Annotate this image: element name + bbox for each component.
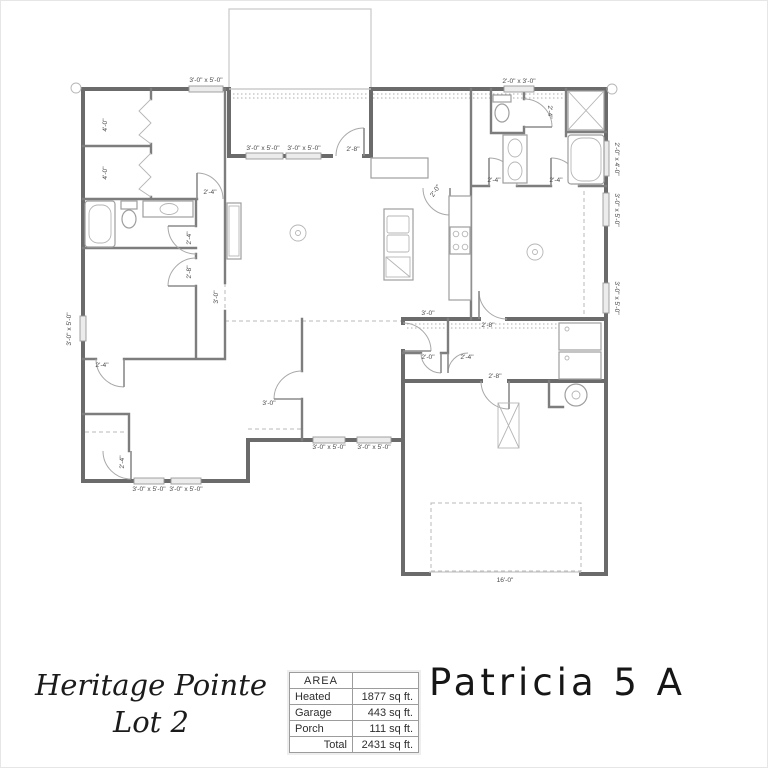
dimension-label: 3'-0" x 5'-0" [169, 486, 203, 493]
dimension-label: 2'-4" [119, 455, 126, 469]
dimension-label: 3'-0" x 5'-0" [287, 145, 321, 152]
dimension-label: 16'-0" [497, 577, 514, 584]
dimension-label: 2'-0" [429, 183, 443, 198]
bathtub [85, 201, 115, 247]
porch-value: 111 sq ft. [353, 721, 419, 737]
table-row: Porch 111 sq ft. [290, 721, 419, 737]
total-value: 2431 sq ft. [353, 737, 419, 753]
dimension-label: 2'-8" [186, 265, 193, 279]
garage-label: Garage [290, 705, 353, 721]
dimension-label: 2'-8" [481, 322, 495, 329]
dimension-labels: 3'-0" x 5'-0"3'-0" x 5'-0"3'-0" x 5'-0"2… [66, 77, 620, 584]
dimension-label: 2'-0" x 3'-0" [502, 78, 536, 85]
fixtures [71, 83, 617, 571]
dimension-label: 4'-0" [102, 166, 109, 180]
subdivision-name: Heritage Pointe [31, 667, 271, 704]
garage-value: 443 sq ft. [353, 705, 419, 721]
dimension-label: 2'-8" [488, 373, 502, 380]
table-row: Garage 443 sq ft. [290, 705, 419, 721]
ceiling-fans [290, 225, 543, 260]
dimension-label: 2'-4" [95, 362, 109, 369]
dimension-label: 3'-0" x 5'-0" [613, 193, 620, 227]
dimension-label: 2'-0" x 4'-0" [613, 142, 620, 176]
dimension-label: 3'-0" [262, 400, 276, 407]
dimension-label: 2'-4" [546, 105, 553, 119]
total-label: Total [290, 737, 353, 753]
area-table: AREA Heated 1877 sq ft. Garage 443 sq ft… [289, 672, 419, 753]
windows [80, 86, 609, 484]
dimension-label: 3'-0" [421, 310, 435, 317]
dimension-label: 3'-0" x 5'-0" [246, 145, 280, 152]
dimension-label: 3'-0" x 5'-0" [312, 444, 346, 451]
area-table-header-row: AREA [290, 673, 419, 689]
dimension-label: 2'-4" [460, 354, 474, 361]
dimension-label: 2'-4" [549, 177, 563, 184]
washer-dryer [559, 323, 601, 379]
master-toilet [493, 95, 511, 122]
subdivision-title: Heritage Pointe Lot 2 [31, 667, 271, 741]
area-header-empty-cell [353, 673, 419, 689]
heated-value: 1877 sq ft. [353, 689, 419, 705]
dimension-label: 3'-0" x 5'-0" [66, 312, 73, 346]
dimension-label: 4'-0" [102, 118, 109, 132]
dimension-label: 2'-4" [487, 177, 501, 184]
dimension-label: 2'-8" [346, 146, 360, 153]
area-header-cell: AREA [290, 673, 353, 689]
toilet [121, 201, 137, 228]
kitchen-island [384, 209, 413, 280]
water-heater [565, 384, 587, 406]
dimension-label: 3'-0" x 5'-0" [357, 444, 391, 451]
dimension-label: 3'-0" x 5'-0" [189, 77, 223, 84]
garage-door [431, 503, 581, 571]
porch-roof-outline [229, 9, 371, 89]
attic-access [498, 403, 519, 448]
master-tub [568, 135, 604, 184]
master-vanity [503, 135, 527, 183]
shower [568, 91, 604, 130]
table-row: Heated 1877 sq ft. [290, 689, 419, 705]
porch-label: Porch [290, 721, 353, 737]
dimension-label: 2'-0" [421, 354, 435, 361]
plan-name: Patricia 5 A [429, 661, 759, 704]
title-block: Heritage Pointe Lot 2 AREA Heated 1877 s… [1, 649, 768, 768]
closet-bifold-doors [139, 99, 151, 197]
dimension-label: 2'-4" [186, 231, 193, 245]
dimension-label: 2'-4" [203, 189, 217, 196]
lot-number: Lot 2 [31, 704, 271, 741]
floor-plan-sheet: 3'-0" x 5'-0"3'-0" x 5'-0"3'-0" x 5'-0"2… [0, 0, 768, 768]
heated-label: Heated [290, 689, 353, 705]
dimension-label: 3'-0" x 5'-0" [613, 281, 620, 315]
stove [450, 227, 470, 254]
vanity-sink [143, 201, 193, 217]
dimension-label: 3'-0" x 5'-0" [132, 486, 166, 493]
table-row: Total 2431 sq ft. [290, 737, 419, 753]
builtin-cabinet [227, 203, 241, 259]
dimension-label: 3'-0" [213, 290, 220, 304]
